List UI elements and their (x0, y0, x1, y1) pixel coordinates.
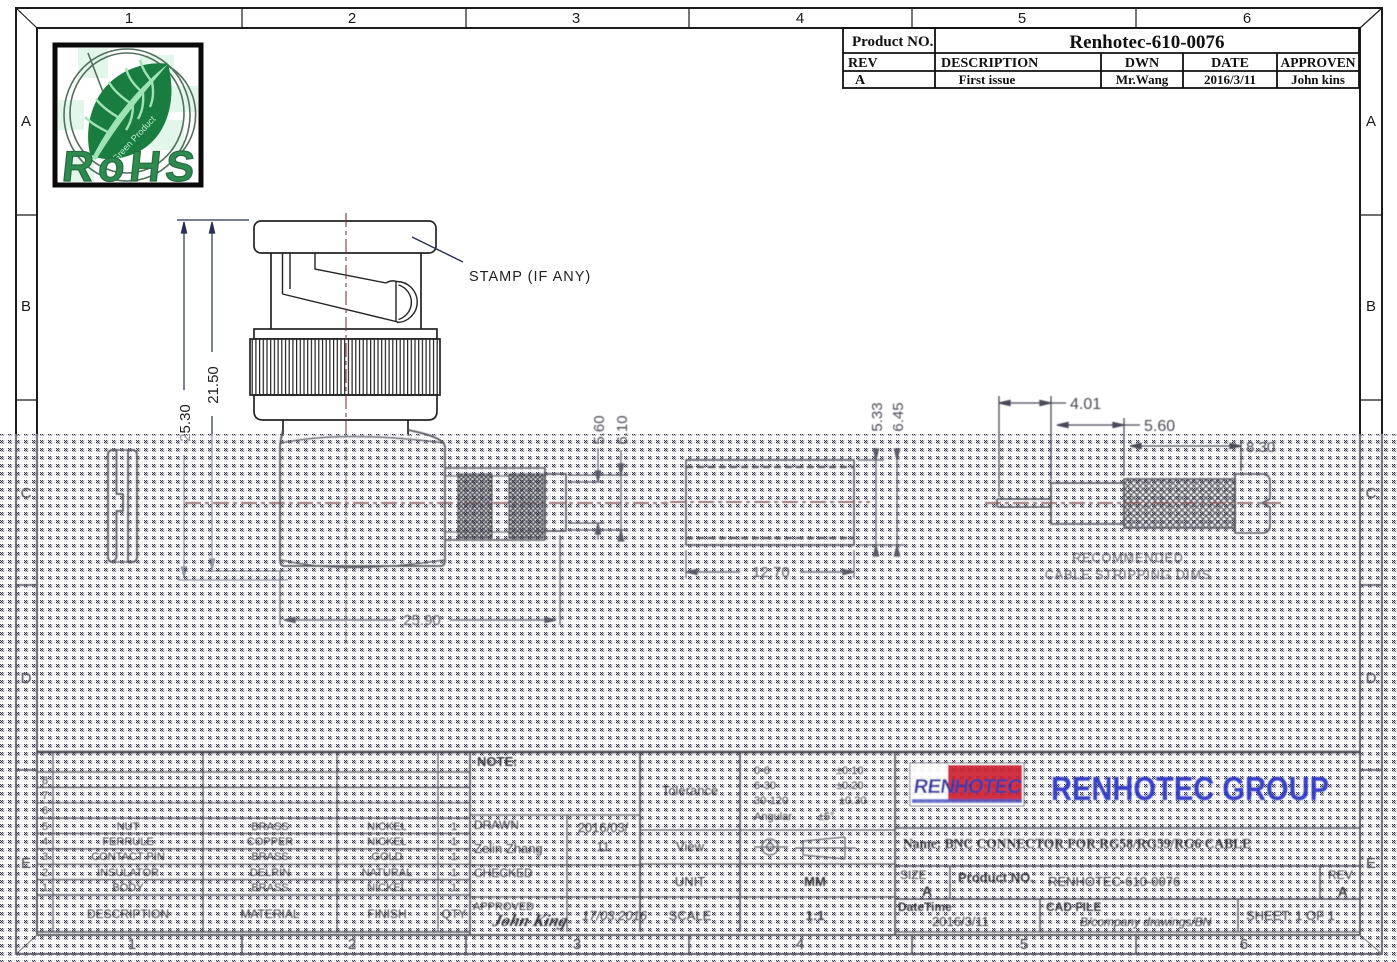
svg-text:CONTACT PIN: CONTACT PIN (91, 851, 165, 863)
svg-text:CAD FILE: CAD FILE (1046, 900, 1101, 914)
svg-text:12.70: 12.70 (752, 564, 790, 581)
svg-text:DESCRIPTION: DESCRIPTION (87, 907, 169, 921)
svg-text:Mr.Wang: Mr.Wang (1116, 72, 1169, 87)
svg-text:View: View (676, 839, 705, 854)
svg-text:A: A (855, 73, 866, 88)
svg-text:4: 4 (42, 836, 48, 848)
svg-text:FERRULE: FERRULE (102, 836, 153, 848)
svg-text:NOTE:: NOTE: (477, 754, 517, 769)
svg-text:Product NO.: Product NO. (958, 870, 1034, 885)
svg-text:REV: REV (1328, 868, 1353, 882)
svg-text:3: 3 (42, 851, 48, 863)
svg-text:DESCRIPTION: DESCRIPTION (941, 56, 1038, 71)
svg-text:RENHOTEC-610-0076: RENHOTEC-610-0076 (1048, 874, 1180, 889)
svg-text:0-6: 0-6 (754, 765, 770, 777)
svg-text:Tolerance: Tolerance (662, 783, 718, 798)
svg-text:NICKEL: NICKEL (367, 836, 407, 848)
svg-text:B: B (1366, 298, 1376, 315)
svg-text:±0.10: ±0.10 (836, 765, 863, 777)
svg-text:NICKEL: NICKEL (367, 821, 407, 833)
svg-text:1: 1 (125, 10, 133, 27)
svg-text:NATURAL: NATURAL (362, 867, 413, 879)
svg-text:30-120: 30-120 (754, 795, 788, 807)
svg-text:1: 1 (451, 836, 457, 848)
svg-text:±0.20: ±0.20 (836, 780, 863, 792)
svg-text:3: 3 (572, 10, 580, 27)
svg-text:A: A (21, 113, 31, 130)
svg-text:1: 1 (451, 851, 457, 863)
svg-text:2: 2 (348, 10, 356, 27)
svg-text:First issue: First issue (959, 72, 1016, 87)
svg-text:SHEET: 1 OF 1: SHEET: 1 OF 1 (1246, 908, 1335, 923)
svg-text:6: 6 (42, 805, 48, 817)
svg-text:Renhotec-610-0076: Renhotec-610-0076 (1069, 32, 1224, 53)
svg-text:DELRIN: DELRIN (250, 867, 290, 879)
svg-text:DRAWN: DRAWN (474, 818, 519, 832)
svg-text:2016/3/11: 2016/3/11 (932, 914, 989, 929)
svg-text:MM: MM (804, 874, 826, 889)
svg-text:17/03.2016: 17/03.2016 (582, 908, 648, 923)
svg-text:1: 1 (42, 882, 48, 894)
svg-text:SCALE: SCALE (669, 908, 712, 923)
svg-text:6: 6 (1243, 10, 1251, 27)
svg-text:A: A (1338, 884, 1348, 899)
svg-text:4: 4 (796, 936, 804, 953)
svg-text:6.10: 6.10 (614, 415, 631, 444)
svg-text:Name: BNC CONNECTOR FOR RG58/R: Name: BNC CONNECTOR FOR RG58/RG59/RG6 CA… (903, 836, 1251, 851)
svg-text:UNIT: UNIT (675, 874, 705, 889)
svg-text:RENHOTEC GROUP: RENHOTEC GROUP (1051, 770, 1329, 807)
svg-text:3: 3 (573, 936, 581, 953)
svg-text:4.01: 4.01 (1070, 396, 1101, 413)
svg-text:COPPER: COPPER (247, 836, 294, 848)
svg-text:SIZE: SIZE (900, 868, 927, 882)
svg-text:B/company drawings/BN: B/company drawings/BN (1080, 915, 1212, 929)
svg-text:STAMP (IF ANY): STAMP (IF ANY) (469, 269, 591, 285)
svg-text:D: D (21, 670, 32, 687)
svg-text:B: B (21, 298, 31, 315)
svg-text:Product NO.: Product NO. (852, 34, 934, 50)
svg-text:11: 11 (596, 839, 610, 854)
svg-text:C: C (21, 485, 32, 502)
svg-text:5: 5 (42, 821, 48, 833)
svg-text:BRASS: BRASS (251, 851, 288, 863)
svg-text:FINISH: FINISH (367, 907, 406, 921)
svg-text:Angular: Angular (754, 811, 792, 823)
svg-text:Zelin Zhang: Zelin Zhang (474, 841, 543, 856)
svg-text:John kins: John kins (1291, 72, 1345, 87)
svg-text:1:1: 1:1 (806, 908, 825, 923)
svg-text:8: 8 (42, 775, 48, 787)
svg-text:5: 5 (1020, 936, 1028, 953)
svg-text:7: 7 (42, 790, 48, 802)
svg-text:1: 1 (451, 867, 457, 879)
svg-text:BODY: BODY (112, 882, 144, 894)
svg-text:NUT: NUT (117, 821, 140, 833)
svg-text:INSULATOR: INSULATOR (97, 867, 159, 879)
svg-text:APPROVEN: APPROVEN (1281, 55, 1356, 70)
svg-text:REV: REV (848, 56, 878, 71)
svg-text:MATERIAL: MATERIAL (240, 907, 299, 921)
svg-text:1: 1 (128, 936, 136, 953)
svg-text:5: 5 (1018, 10, 1026, 27)
svg-text:2: 2 (348, 936, 356, 953)
svg-text:RECOMMENDED: RECOMMENDED (1072, 551, 1184, 565)
svg-text:21.50: 21.50 (205, 366, 222, 404)
svg-text:DATE: DATE (1211, 56, 1249, 71)
svg-text:6-30: 6-30 (754, 780, 776, 792)
svg-text:2016/3/11: 2016/3/11 (1204, 72, 1256, 87)
svg-text:CHECKED: CHECKED (474, 866, 533, 880)
svg-text:DateTime: DateTime (898, 900, 952, 914)
svg-text:CABLE STRIPPING DIMS: CABLE STRIPPING DIMS (1045, 568, 1212, 582)
svg-text:±5°: ±5° (818, 811, 835, 823)
svg-text:RENHOTEC: RENHOTEC (912, 776, 1023, 798)
svg-text:5.33: 5.33 (869, 402, 886, 431)
svg-text:±0.30: ±0.30 (839, 795, 866, 807)
svg-text:2: 2 (42, 867, 48, 879)
svg-text:1: 1 (451, 882, 457, 894)
svg-text:A: A (1366, 113, 1376, 130)
svg-text:6: 6 (1240, 936, 1248, 953)
svg-text:C: C (1366, 485, 1377, 502)
svg-text:5.60: 5.60 (1144, 418, 1175, 435)
svg-text:John King: John King (490, 911, 570, 930)
svg-text:QTY: QTY (442, 907, 467, 921)
svg-text:A: A (922, 883, 932, 899)
svg-text:25.90: 25.90 (403, 612, 441, 629)
svg-text:8.30: 8.30 (1246, 439, 1275, 456)
svg-text:1: 1 (451, 821, 457, 833)
svg-text:5.60: 5.60 (591, 415, 608, 444)
svg-text:6.45: 6.45 (890, 402, 907, 431)
svg-text:BRASS: BRASS (251, 882, 288, 894)
svg-text:D: D (1366, 670, 1377, 687)
svg-text:GOLD: GOLD (371, 851, 402, 863)
svg-text:NICKEL: NICKEL (367, 882, 407, 894)
svg-text:E: E (21, 855, 31, 872)
svg-text:DWN: DWN (1125, 56, 1159, 71)
svg-text:BRASS: BRASS (251, 821, 288, 833)
svg-text:E: E (1366, 855, 1376, 872)
svg-text:4: 4 (796, 10, 804, 27)
svg-text:2016/03/: 2016/03/ (578, 820, 629, 835)
